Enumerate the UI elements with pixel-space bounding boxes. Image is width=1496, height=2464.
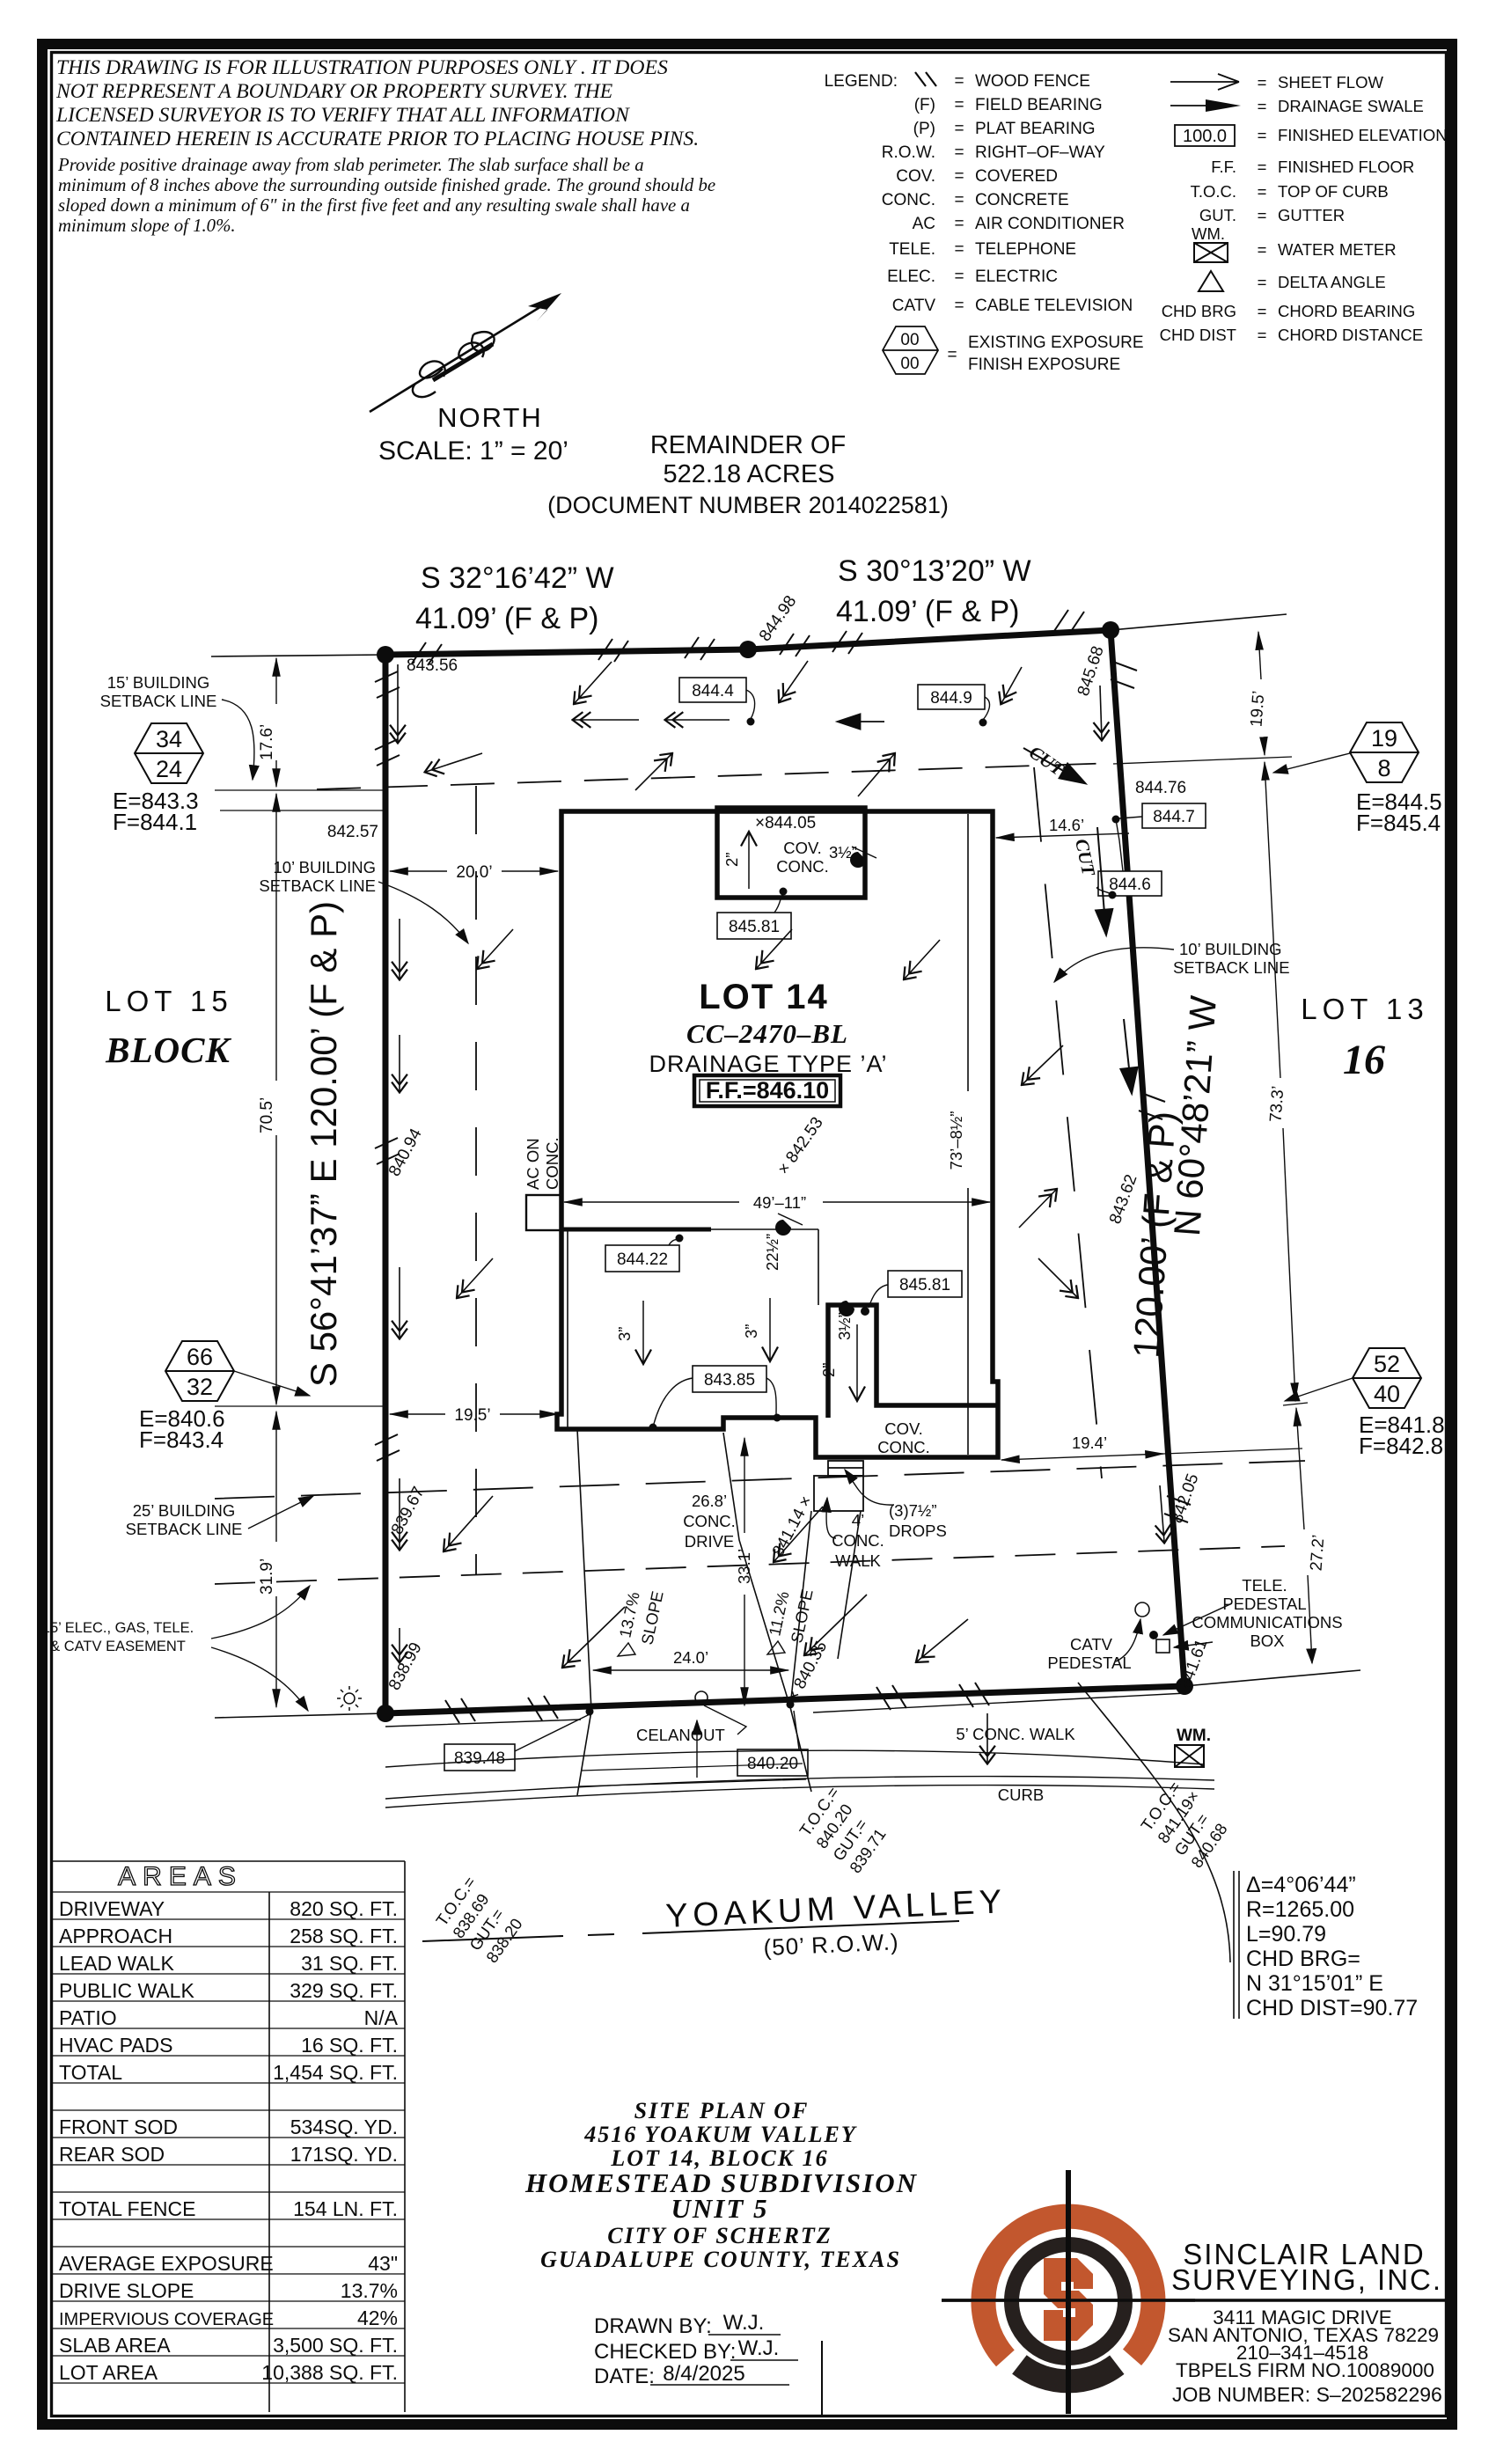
svg-text:843.85: 843.85 — [704, 1371, 755, 1390]
svg-text:49’–11”: 49’–11” — [753, 1193, 806, 1212]
svg-text:=: = — [954, 72, 964, 91]
svg-text:F=845.4: F=845.4 — [1356, 810, 1441, 836]
svg-text:844.7: 844.7 — [1153, 808, 1195, 826]
svg-text:DRAWN BY:: DRAWN BY: — [594, 2314, 712, 2338]
svg-text:15’ BUILDING: 15’ BUILDING — [107, 673, 210, 692]
svg-text:WALK: WALK — [835, 1551, 881, 1570]
svg-text:COMMUNICATIONS: COMMUNICATIONS — [1192, 1613, 1342, 1632]
svg-text:CHORD BEARING: CHORD BEARING — [1278, 302, 1415, 320]
svg-text:FIELD BEARING: FIELD BEARING — [975, 96, 1103, 114]
svg-text:43": 43" — [368, 2252, 398, 2275]
svg-text:GUT.: GUT. — [1199, 206, 1236, 224]
svg-text:3,500 SQ. FT.: 3,500 SQ. FT. — [273, 2334, 398, 2357]
svg-text:THIS DRAWING IS FOR ILLUSTRATI: THIS DRAWING IS FOR ILLUSTRATION PURPOSE… — [56, 56, 668, 79]
svg-text:LEGEND:: LEGEND: — [825, 72, 898, 91]
svg-text:×844.05: ×844.05 — [755, 814, 816, 832]
svg-text:1,454 SQ. FT.: 1,454 SQ. FT. — [273, 2061, 398, 2084]
svg-text:100.0: 100.0 — [1183, 127, 1227, 146]
svg-text:FINISHED ELEVATION: FINISHED ELEVATION — [1278, 126, 1448, 144]
svg-text:2”: 2” — [819, 1363, 838, 1377]
svg-text:TOTAL FENCE: TOTAL FENCE — [59, 2197, 196, 2220]
svg-text:5’ CONC. WALK: 5’ CONC. WALK — [956, 1725, 1075, 1743]
svg-text:=: = — [954, 191, 964, 209]
svg-text:=: = — [1258, 97, 1267, 115]
svg-text:TELE.: TELE. — [1242, 1576, 1287, 1595]
svg-text:UNIT 5: UNIT 5 — [671, 2193, 768, 2224]
svg-text:16: 16 — [1343, 1037, 1385, 1083]
svg-text:258 SQ. FT.: 258 SQ. FT. — [290, 1925, 398, 1947]
svg-text:10’ BUILDING: 10’ BUILDING — [273, 858, 376, 876]
svg-text:=: = — [954, 96, 964, 114]
svg-text:73.3’: 73.3’ — [1267, 1085, 1288, 1123]
svg-text:41.09’ (F & P): 41.09’ (F & P) — [415, 602, 598, 635]
svg-text:TOP OF CURB: TOP OF CURB — [1278, 182, 1389, 201]
svg-text:(3)7½”: (3)7½” — [889, 1501, 937, 1520]
svg-text:S 56°41’37” E 120.00’ (F &: S 56°41’37” E 120.00’ (F & P) — [303, 901, 344, 1387]
svg-text:SLAB AREA: SLAB AREA — [59, 2334, 171, 2357]
svg-text:844.9: 844.9 — [930, 689, 972, 708]
svg-text:COV.: COV. — [884, 1419, 923, 1438]
svg-text:842.57: 842.57 — [327, 823, 378, 841]
svg-text:19.4’: 19.4’ — [1072, 1434, 1107, 1452]
svg-text:ELEC.: ELEC. — [887, 268, 935, 286]
svg-text:31.9’: 31.9’ — [258, 1558, 276, 1595]
svg-text:22½”: 22½” — [763, 1234, 781, 1271]
svg-text:8: 8 — [1377, 755, 1390, 781]
svg-text:DRAINAGE TYPE ’A’: DRAINAGE TYPE ’A’ — [649, 1051, 887, 1077]
svg-text:AREAS: AREAS — [118, 1862, 243, 1891]
svg-text:DRAINAGE SWALE: DRAINAGE SWALE — [1278, 97, 1424, 115]
svg-text:522.18 ACRES: 522.18 ACRES — [663, 460, 834, 488]
svg-text:GUADALUPE COUNTY, TEXAS: GUADALUPE COUNTY, TEXAS — [540, 2247, 901, 2272]
svg-text:DRIVEWAY: DRIVEWAY — [59, 1897, 165, 1920]
svg-text:SETBACK LINE: SETBACK LINE — [126, 1520, 243, 1538]
svg-text:COV.: COV. — [896, 167, 935, 186]
svg-text:8/4/2025: 8/4/2025 — [663, 2362, 744, 2386]
svg-text:TOTAL: TOTAL — [59, 2061, 122, 2084]
svg-text:CONC.: CONC. — [882, 191, 935, 209]
svg-text:=: = — [954, 167, 964, 186]
svg-text:15’ ELEC., GAS, TELE.: 15’ ELEC., GAS, TELE. — [42, 1620, 194, 1636]
svg-text:=: = — [1258, 206, 1267, 224]
svg-text:LOT 15: LOT 15 — [105, 985, 232, 1017]
svg-text:& CATV EASEMENT: & CATV EASEMENT — [50, 1639, 186, 1654]
svg-text:BLOCK: BLOCK — [105, 1030, 231, 1070]
svg-text:34: 34 — [156, 726, 182, 752]
svg-text:00: 00 — [900, 331, 919, 349]
svg-text:41.09’ (F & P): 41.09’ (F & P) — [836, 595, 1019, 628]
svg-text:CONC.: CONC. — [683, 1512, 736, 1530]
svg-text:CHECKED BY:: CHECKED BY: — [594, 2340, 736, 2364]
svg-text:REAR SOD: REAR SOD — [59, 2143, 165, 2166]
svg-text:F.F.=846.10: F.F.=846.10 — [706, 1077, 829, 1104]
svg-text:32: 32 — [187, 1374, 213, 1400]
svg-text:=: = — [1258, 126, 1267, 144]
svg-text:CONC.: CONC. — [877, 1438, 930, 1456]
svg-text:40: 40 — [1374, 1381, 1400, 1407]
svg-text:CONC.: CONC. — [543, 1137, 561, 1190]
svg-text:=: = — [1258, 273, 1267, 291]
svg-text:27.2’: 27.2’ — [1308, 1534, 1329, 1572]
svg-text:NORTH: NORTH — [437, 402, 543, 433]
svg-text:(P): (P) — [913, 120, 935, 138]
svg-text:AIR CONDITIONER: AIR CONDITIONER — [975, 215, 1125, 233]
svg-text:24.0’: 24.0’ — [673, 1648, 708, 1667]
svg-text:844.6: 844.6 — [1109, 876, 1151, 894]
svg-text:SETBACK LINE: SETBACK LINE — [259, 876, 376, 895]
svg-text:=: = — [954, 215, 964, 233]
svg-text:844.22: 844.22 — [617, 1250, 668, 1269]
svg-text:52: 52 — [1374, 1351, 1400, 1377]
svg-text:AC ON: AC ON — [524, 1138, 542, 1190]
svg-text:3½”: 3½” — [835, 1312, 854, 1340]
svg-text:3”: 3” — [615, 1327, 634, 1341]
svg-text:N/A: N/A — [364, 2006, 399, 2029]
svg-text:F=844.1: F=844.1 — [113, 809, 197, 835]
svg-text:844.76: 844.76 — [1135, 779, 1186, 797]
svg-text:=: = — [1258, 182, 1267, 201]
svg-text:=: = — [1258, 73, 1267, 92]
svg-text:SETBACK LINE: SETBACK LINE — [1173, 958, 1290, 977]
svg-text:840.20: 840.20 — [747, 1755, 798, 1773]
svg-text:843.56: 843.56 — [407, 656, 458, 675]
svg-text:DROPS: DROPS — [889, 1522, 947, 1540]
svg-text:=: = — [947, 346, 957, 364]
svg-text:33.1’: 33.1’ — [735, 1549, 753, 1584]
svg-text:=: = — [1258, 240, 1267, 259]
svg-text:PLAT BEARING: PLAT BEARING — [975, 120, 1096, 138]
svg-text:WOOD FENCE: WOOD FENCE — [975, 72, 1090, 91]
svg-text:GUTTER: GUTTER — [1278, 206, 1345, 224]
svg-text:T.O.C.: T.O.C. — [1191, 182, 1236, 201]
svg-text:BOX: BOX — [1250, 1632, 1284, 1650]
svg-text:42%: 42% — [357, 2306, 398, 2329]
svg-text:R.O.W.: R.O.W. — [882, 143, 935, 162]
svg-text:LOT 13: LOT 13 — [1301, 993, 1428, 1025]
svg-text:24: 24 — [156, 756, 182, 782]
svg-text:IMPERVIOUS COVERAGE: IMPERVIOUS COVERAGE — [59, 2310, 274, 2329]
svg-text:=: = — [1258, 158, 1267, 176]
svg-text:LOT 14: LOT 14 — [699, 978, 829, 1016]
svg-text:TBPELS FIRM NO.10089000: TBPELS FIRM NO.10089000 — [1176, 2359, 1434, 2381]
svg-text:10’ BUILDING: 10’ BUILDING — [1179, 940, 1282, 958]
svg-text:CONC.: CONC. — [832, 1531, 884, 1550]
svg-text:CHD DIST: CHD DIST — [1160, 326, 1236, 344]
svg-text:=: = — [1258, 302, 1267, 320]
svg-text:CATV: CATV — [1070, 1635, 1113, 1654]
svg-text:171SQ. YD.: 171SQ. YD. — [290, 2143, 398, 2166]
svg-text:DATE:: DATE: — [594, 2365, 655, 2388]
svg-text:154 LN. FT.: 154 LN. FT. — [293, 2197, 398, 2220]
svg-text:NOT REPRESENT A BOUNDARY OR PR: NOT REPRESENT A BOUNDARY OR PROPERTY SUR… — [55, 80, 613, 103]
svg-text:TELE.: TELE. — [889, 240, 935, 259]
svg-text:19: 19 — [1371, 725, 1397, 752]
svg-text:LICENSED SURVEYOR IS TO VERIFY: LICENSED SURVEYOR IS TO VERIFY THAT ALL … — [55, 104, 630, 127]
svg-text:PATIO: PATIO — [59, 2006, 117, 2029]
svg-text:COV.: COV. — [783, 839, 822, 857]
svg-text:CHORD DISTANCE: CHORD DISTANCE — [1278, 326, 1423, 344]
svg-text:19.5’: 19.5’ — [454, 1406, 490, 1425]
svg-text:DELTA ANGLE: DELTA ANGLE — [1278, 273, 1386, 291]
svg-text:17.6’: 17.6’ — [258, 724, 276, 760]
svg-text:=: = — [1258, 326, 1267, 344]
svg-text:70.5’: 70.5’ — [258, 1097, 276, 1133]
svg-text:=: = — [954, 268, 964, 286]
svg-text:4’: 4’ — [852, 1511, 864, 1529]
svg-text:CONTAINED HEREIN IS ACCURATE P: CONTAINED HEREIN IS ACCURATE PRIOR TO PL… — [56, 128, 699, 150]
svg-text:FRONT SOD: FRONT SOD — [59, 2116, 178, 2138]
svg-text:PUBLIC WALK: PUBLIC WALK — [59, 1979, 194, 2002]
svg-text:CONC.: CONC. — [776, 857, 829, 876]
svg-text:W.J.: W.J. — [738, 2336, 780, 2360]
svg-text:F=842.8: F=842.8 — [1359, 1433, 1443, 1459]
svg-text:WM.: WM. — [1192, 224, 1225, 243]
svg-text:LEAD WALK: LEAD WALK — [59, 1952, 174, 1975]
svg-text:31 SQ. FT.: 31 SQ. FT. — [301, 1952, 398, 1975]
svg-text:=: = — [954, 143, 964, 162]
svg-text:SETBACK LINE: SETBACK LINE — [100, 692, 217, 710]
svg-text:CC–2470–BL: CC–2470–BL — [686, 1018, 848, 1049]
svg-text:00: 00 — [900, 355, 919, 373]
svg-text:10,388 SQ. FT.: 10,388 SQ. FT. — [261, 2361, 398, 2384]
svg-text:CATV: CATV — [892, 297, 936, 315]
svg-text:JOB NUMBER: S–202582296: JOB NUMBER: S–202582296 — [1172, 2383, 1442, 2406]
svg-text:ELECTRIC: ELECTRIC — [975, 268, 1058, 286]
svg-text:=: = — [954, 240, 964, 259]
svg-text:HVAC PADS: HVAC PADS — [59, 2034, 173, 2057]
svg-text:AC: AC — [913, 215, 935, 233]
svg-text:APPROACH: APPROACH — [59, 1925, 172, 1947]
svg-text:REMAINDER OF: REMAINDER OF — [650, 431, 846, 459]
svg-text:3”: 3” — [742, 1324, 760, 1338]
svg-text:=: = — [954, 297, 964, 315]
svg-text:EXISTING EXPOSURE: EXISTING EXPOSURE — [968, 334, 1144, 352]
svg-text:Provide positive drainage away: Provide positive drainage away from slab… — [57, 155, 644, 175]
svg-text:FINISHED FLOOR: FINISHED FLOOR — [1278, 158, 1414, 176]
svg-text:S 32°16’42” W: S 32°16’42” W — [421, 561, 614, 595]
svg-text:845.81: 845.81 — [729, 918, 780, 936]
svg-text:CELANOUT: CELANOUT — [636, 1726, 725, 1744]
svg-text:LOT AREA: LOT AREA — [59, 2361, 158, 2384]
svg-text:(DOCUMENT NUMBER 2014022581): (DOCUMENT NUMBER 2014022581) — [547, 492, 949, 518]
svg-text:534SQ. YD.: 534SQ. YD. — [290, 2116, 398, 2138]
svg-text:RIGHT–OF–WAY: RIGHT–OF–WAY — [975, 143, 1105, 162]
svg-text:=: = — [954, 120, 964, 138]
svg-text:25’ BUILDING: 25’ BUILDING — [133, 1501, 236, 1520]
svg-text:13.7%: 13.7% — [341, 2279, 398, 2302]
svg-text:2”: 2” — [722, 853, 741, 867]
svg-text:CHD DIST=90.77: CHD DIST=90.77 — [1246, 1996, 1418, 2020]
svg-text:SITE PLAN OF: SITE PLAN OF — [634, 2098, 810, 2123]
svg-text:minimum slope of 1.0%.: minimum slope of 1.0%. — [58, 216, 236, 236]
svg-text:R=1265.00: R=1265.00 — [1246, 1897, 1354, 1922]
svg-text:AVERAGE EXPOSURE: AVERAGE EXPOSURE — [59, 2252, 274, 2275]
svg-text:W.J.: W.J. — [723, 2311, 765, 2335]
svg-text:TELEPHONE: TELEPHONE — [975, 240, 1076, 259]
svg-text:L=90.79: L=90.79 — [1246, 1922, 1326, 1947]
svg-text:sloped down a minimum of 6" in: sloped down a minimum of 6" in the first… — [58, 195, 690, 216]
svg-text:CHD BRG=: CHD BRG= — [1246, 1947, 1360, 1971]
svg-text:COVERED: COVERED — [975, 167, 1058, 186]
svg-text:DRIVE SLOPE: DRIVE SLOPE — [59, 2279, 194, 2302]
svg-text:16 SQ. FT.: 16 SQ. FT. — [301, 2034, 398, 2057]
svg-text:CHD BRG: CHD BRG — [1162, 302, 1236, 320]
svg-text:14.6’: 14.6’ — [1049, 816, 1084, 834]
svg-text:844.4: 844.4 — [692, 682, 734, 700]
svg-text:845.81: 845.81 — [899, 1276, 950, 1294]
svg-text:WM.: WM. — [1177, 1727, 1211, 1745]
svg-text:N 31°15’01” E: N 31°15’01” E — [1246, 1971, 1383, 1996]
svg-text:S 30°13’20” W: S 30°13’20” W — [838, 554, 1031, 588]
svg-text:20.0’: 20.0’ — [456, 863, 492, 882]
svg-text:329 SQ. FT.: 329 SQ. FT. — [290, 1979, 398, 2002]
svg-text:CITY OF SCHERTZ: CITY OF SCHERTZ — [607, 2223, 832, 2248]
svg-text:SURVEYING, INC.: SURVEYING, INC. — [1171, 2263, 1442, 2296]
svg-text:(F): (F) — [914, 96, 935, 114]
svg-text:minimum of 8 inches above the: minimum of 8 inches above the surroundin… — [58, 175, 715, 195]
svg-text:66: 66 — [187, 1344, 213, 1370]
svg-text:FINISH EXPOSURE: FINISH EXPOSURE — [968, 356, 1120, 374]
svg-text:SCALE: 1” = 20’: SCALE: 1” = 20’ — [378, 436, 568, 466]
svg-text:19.5’: 19.5’ — [1248, 690, 1269, 728]
svg-text:Δ=4°06’44”: Δ=4°06’44” — [1246, 1873, 1356, 1897]
svg-text:73’–8½”: 73’–8½” — [947, 1111, 965, 1170]
svg-text:CABLE TELEVISION: CABLE TELEVISION — [975, 297, 1133, 315]
svg-text:CONCRETE: CONCRETE — [975, 191, 1069, 209]
svg-text:CURB: CURB — [998, 1786, 1044, 1804]
svg-text:F=843.4: F=843.4 — [139, 1426, 224, 1453]
svg-text:839.48: 839.48 — [454, 1749, 505, 1768]
svg-text:F.F.: F.F. — [1211, 158, 1236, 176]
svg-text:26.8’: 26.8’ — [692, 1492, 727, 1510]
svg-text:820 SQ. FT.: 820 SQ. FT. — [290, 1897, 398, 1920]
svg-text:DRIVE: DRIVE — [685, 1532, 735, 1551]
svg-text:PEDESTAL: PEDESTAL — [1047, 1654, 1131, 1672]
svg-text:4516 YOAKUM VALLEY: 4516 YOAKUM VALLEY — [583, 2122, 857, 2147]
svg-text:WATER METER: WATER METER — [1278, 240, 1397, 259]
svg-text:SHEET FLOW: SHEET FLOW — [1278, 73, 1383, 92]
svg-text:PEDESTAL: PEDESTAL — [1222, 1595, 1306, 1613]
